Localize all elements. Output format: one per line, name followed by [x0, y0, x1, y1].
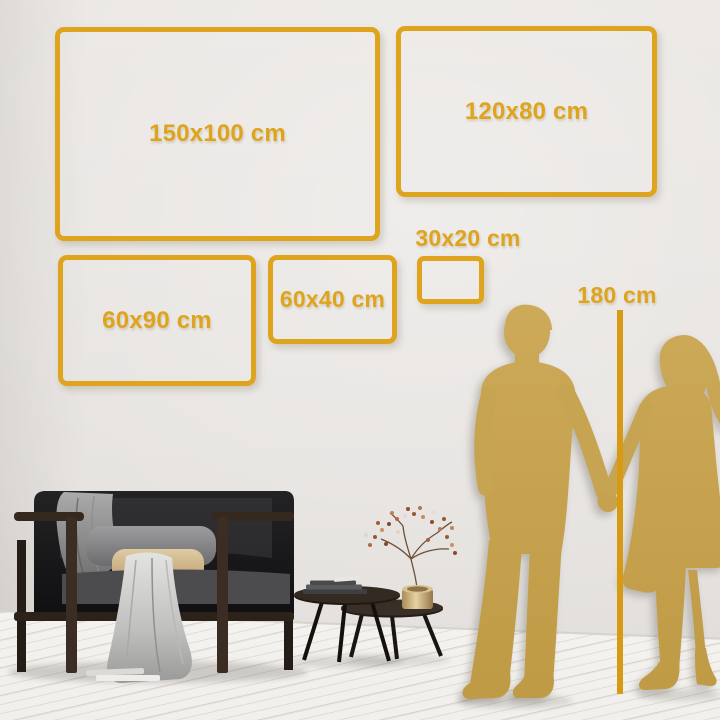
size-label-60x90: 60x90 cm [102, 307, 212, 335]
blossoms [364, 506, 457, 555]
size-frame-30x20 [417, 256, 484, 304]
size-frame-150x100: 150x100 cm [55, 27, 380, 241]
height-label: 180 cm [573, 282, 661, 309]
height-line [617, 310, 623, 694]
size-frame-60x90: 60x90 cm [58, 255, 256, 386]
table-books [303, 576, 367, 594]
coffee-table [294, 586, 400, 662]
wall-art-size-guide: 150x100 cm 120x80 cm 60x90 cm 60x40 cm 3… [0, 0, 720, 720]
sofa [14, 491, 294, 683]
size-label-150x100: 150x100 cm [149, 120, 286, 148]
size-label-60x40: 60x40 cm [280, 286, 385, 313]
size-frame-60x40: 60x40 cm [268, 255, 397, 344]
woman-silhouette [598, 335, 720, 690]
size-frame-120x80: 120x80 cm [396, 26, 657, 197]
size-label-120x80: 120x80 cm [465, 98, 588, 126]
size-label-30x20: 30x20 cm [407, 225, 529, 252]
couple-silhouettes [463, 305, 720, 699]
man-silhouette [463, 305, 618, 699]
